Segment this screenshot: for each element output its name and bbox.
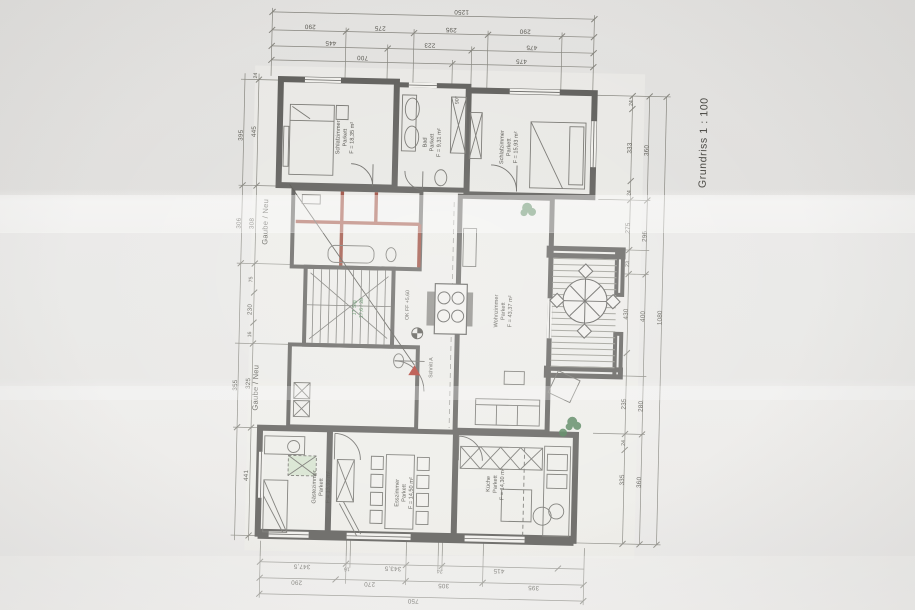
dim-top: 223 — [424, 41, 436, 48]
dim-top: 275 — [374, 24, 386, 31]
dim-left-outer: 395 — [238, 129, 245, 141]
dim-top-total: 1250 — [454, 8, 469, 15]
dim-right-mid: 360 — [643, 145, 650, 157]
room-area: F = 18,35 m² — [349, 122, 356, 154]
room-name: Schlafzimmer — [499, 130, 506, 164]
dim-left: 445 — [251, 126, 258, 138]
room-area: F = 15,93 m² — [513, 131, 520, 163]
dim-top: 475 — [516, 57, 528, 64]
drawing-title: Grundriss 1 : 100 — [697, 97, 711, 188]
room-name: Schlafzimmer — [335, 120, 342, 154]
dim-top: 295 — [445, 26, 457, 33]
dim-left: 24 — [253, 72, 259, 78]
angle-note: 90° — [454, 96, 460, 104]
dim-right: 24 — [628, 100, 634, 106]
dim-top: 475 — [526, 44, 538, 51]
dim-top: 290 — [519, 28, 531, 35]
room-floor: Parkett — [342, 128, 348, 146]
room-floor: Parkett — [429, 133, 435, 151]
room-name: Bad — [422, 137, 428, 147]
floorplan-drawing: 1250 290 275 295 290 445 223 475 700 475 — [0, 0, 915, 610]
room-floor: Parkett — [506, 138, 512, 156]
floorplan-photo: 1250 290 275 295 290 445 223 475 700 475 — [0, 0, 915, 610]
dim-top: 700 — [357, 54, 369, 61]
dim-right: 333 — [626, 142, 633, 154]
dim-top: 445 — [325, 39, 337, 46]
scan-glare — [0, 195, 915, 610]
room-area: F = 9,31 m² — [436, 128, 443, 157]
dim-top: 290 — [304, 23, 316, 30]
